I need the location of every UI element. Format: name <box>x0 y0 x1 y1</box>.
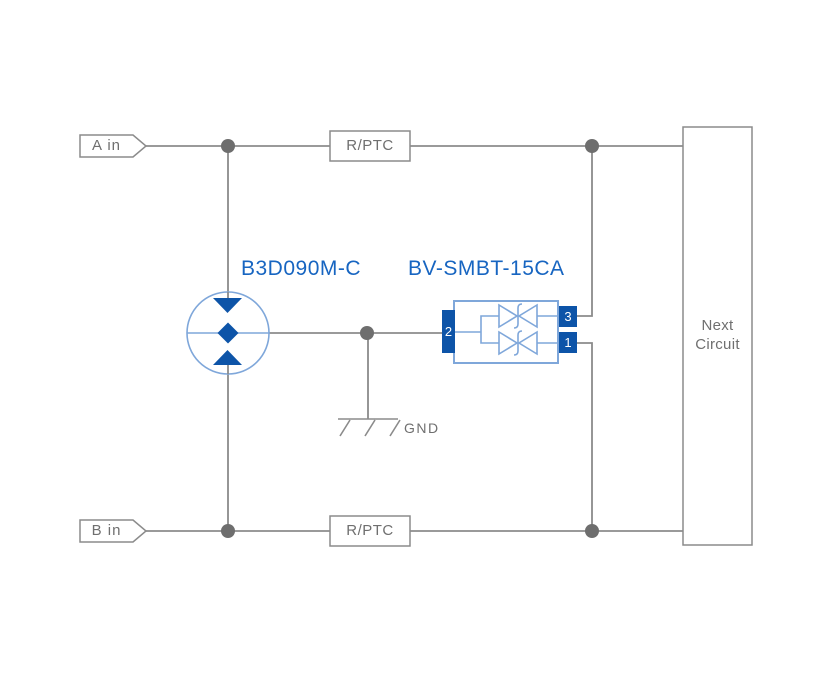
rptc-bottom-label: R/PTC <box>330 516 410 546</box>
ground-hatch-lines <box>340 420 400 436</box>
rptc-top-label: R/PTC <box>330 131 410 161</box>
junction-dot-a-top <box>221 139 235 153</box>
junction-dot-b-bottom <box>221 524 235 538</box>
gdt-symbol <box>187 292 269 374</box>
next-circuit-label-line1: Next <box>683 316 752 335</box>
b-in-label: B in <box>80 520 133 542</box>
tvs-pin3-number: 3 <box>559 306 577 327</box>
tvs-pin2-number: 2 <box>442 310 455 353</box>
wire-pin3-to-top-rail <box>577 146 592 316</box>
junction-dot-right-bottom <box>585 524 599 538</box>
gdt-part-number: B3D090M-C <box>241 257 361 281</box>
wire-pin1-to-bottom-rail <box>577 343 592 531</box>
next-circuit-label: Next Circuit <box>683 316 752 354</box>
tvs-pin1-number: 1 <box>559 332 577 353</box>
next-circuit-label-line2: Circuit <box>683 335 752 354</box>
tvs-diode-bottom <box>499 331 537 355</box>
tvs-diode-top <box>499 304 537 328</box>
tvs-symbol <box>442 301 577 363</box>
tvs-part-number: BV-SMBT-15CA <box>408 257 565 281</box>
ground-symbol <box>338 419 400 436</box>
junction-dot-right-top <box>585 139 599 153</box>
junction-dot-ground <box>360 326 374 340</box>
gnd-label: GND <box>404 420 440 436</box>
circuit-diagram: A in B in R/PTC R/PTC B3D090M-C BV-SMBT-… <box>0 0 832 675</box>
a-in-label: A in <box>80 135 133 157</box>
